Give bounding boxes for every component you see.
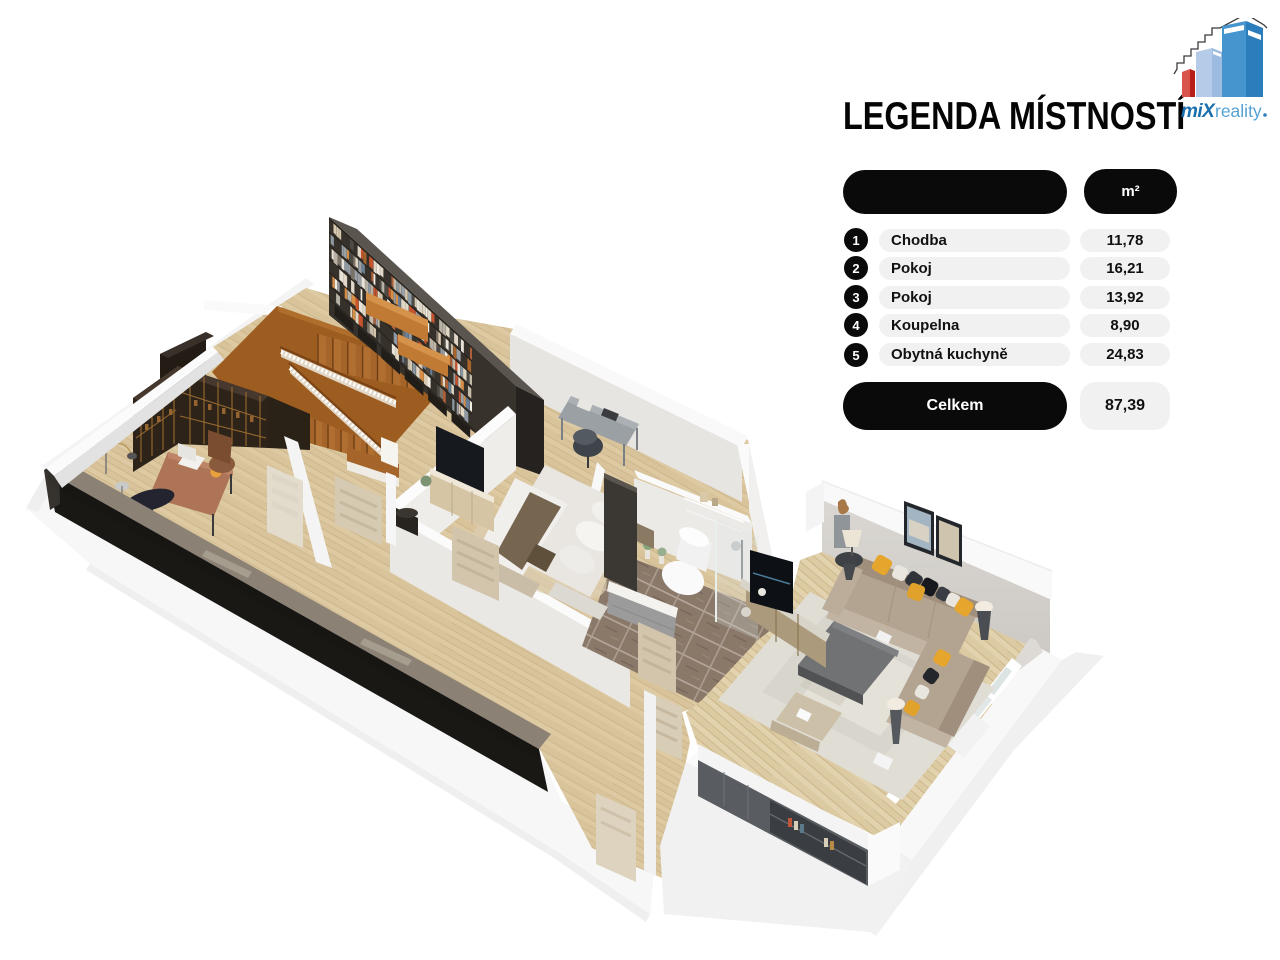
- svg-text:reality: reality: [1215, 101, 1262, 121]
- svg-text:miΧ: miΧ: [1181, 101, 1216, 122]
